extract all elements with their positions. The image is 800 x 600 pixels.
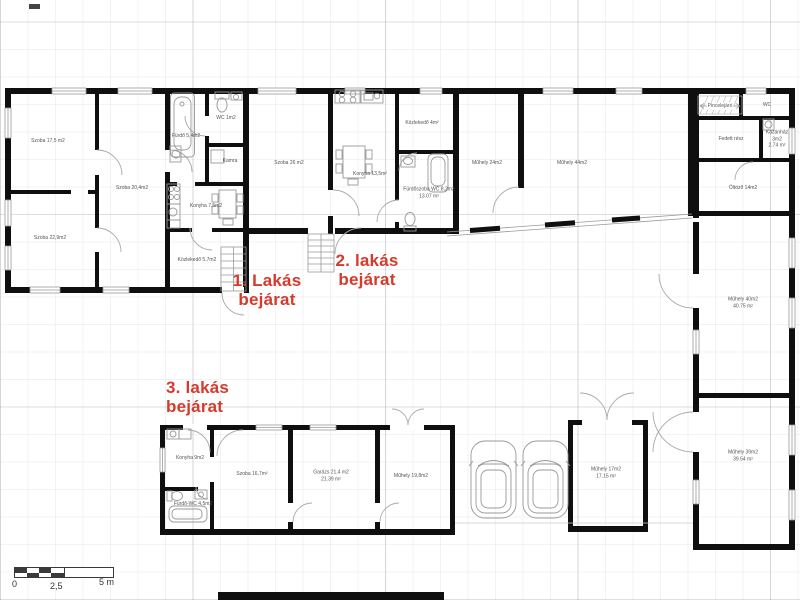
sink-icon — [401, 156, 415, 167]
door-arcs — [97, 116, 753, 522]
floorplan-drawing — [0, 0, 800, 600]
scale-bar-plain — [64, 568, 114, 577]
toilet-icon — [215, 92, 229, 112]
scale-bar-checker — [15, 568, 64, 577]
dining-table-icon — [212, 190, 243, 225]
bathtub-icon — [169, 506, 207, 522]
parked-cars — [469, 441, 570, 518]
floorplan-canvas: Szoba 17,5 m2 Szoba 22,9m2 Szoba 20,4m2 … — [0, 0, 800, 600]
sink-icon — [170, 146, 181, 162]
annotation-apartment1-entrance: 1. Lakás bejárat — [226, 271, 308, 309]
dining-table-icon — [336, 146, 372, 185]
bathtub-icon — [171, 93, 195, 157]
basement-stairs-hatch — [698, 96, 742, 114]
boiler-icon — [763, 119, 774, 130]
bathtub-icon — [428, 154, 448, 192]
toilet-icon — [167, 491, 183, 501]
annotation-apartment2-entrance: 2. lakás bejárat — [330, 251, 404, 289]
annotation-apartment3-entrance: 3. lakás bejárat — [166, 378, 244, 416]
scale-label-mid: 2,5 — [50, 581, 63, 591]
car-icon — [469, 441, 518, 518]
car-icon — [521, 441, 570, 518]
pantry-shelf-icon — [211, 150, 224, 163]
scale-label-end: 5 m — [99, 577, 114, 587]
scale-label-zero: 0 — [12, 579, 17, 589]
